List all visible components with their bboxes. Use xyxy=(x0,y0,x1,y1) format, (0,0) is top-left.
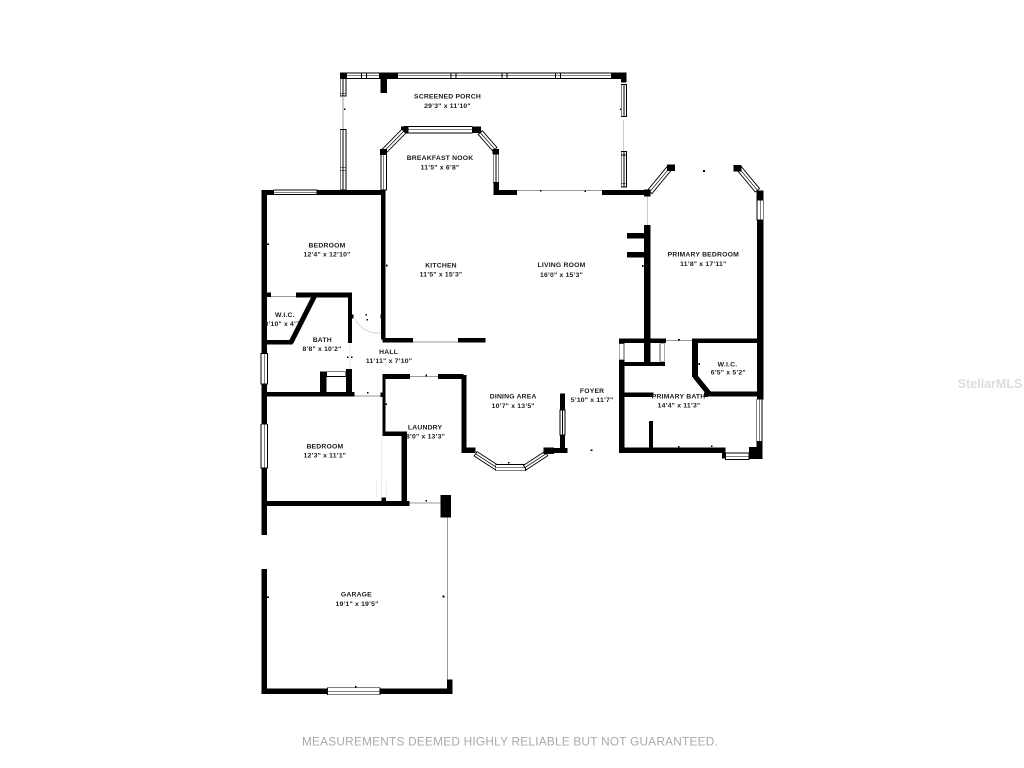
svg-text:12’4" x 12’10": 12’4" x 12’10" xyxy=(303,252,350,259)
svg-text:11’5" x 6’8": 11’5" x 6’8" xyxy=(421,165,460,172)
svg-text:BREAKFAST NOOK: BREAKFAST NOOK xyxy=(407,155,474,162)
svg-text:3’10" x 4’7": 3’10" x 4’7" xyxy=(264,321,303,328)
svg-text:11’8" x 17’11": 11’8" x 17’11" xyxy=(680,261,726,268)
svg-text:W.I.C.: W.I.C. xyxy=(275,312,295,319)
svg-text:LIVING ROOM: LIVING ROOM xyxy=(538,262,586,269)
svg-text:16’0" x 15’3": 16’0" x 15’3" xyxy=(540,272,583,279)
svg-text:W.I.C.: W.I.C. xyxy=(718,362,738,369)
svg-text:KITCHEN: KITCHEN xyxy=(425,262,457,269)
svg-text:11’5" x 15’3": 11’5" x 15’3" xyxy=(420,272,463,279)
svg-text:10’7" x 13’5": 10’7" x 13’5" xyxy=(492,403,535,410)
svg-text:8’0" x 13’3": 8’0" x 13’3" xyxy=(406,434,445,441)
svg-text:LAUNDRY: LAUNDRY xyxy=(408,425,443,432)
svg-text:GARAGE: GARAGE xyxy=(341,592,372,599)
svg-text:6’5" x 5’2": 6’5" x 5’2" xyxy=(711,369,746,376)
svg-text:BATH: BATH xyxy=(313,337,332,344)
svg-text:StellarMLS: StellarMLS xyxy=(958,377,1023,391)
svg-text:PRIMARY BEDROOM: PRIMARY BEDROOM xyxy=(668,252,739,259)
svg-text:8’8" x 10’2": 8’8" x 10’2" xyxy=(302,346,341,353)
svg-text:FOYER: FOYER xyxy=(580,388,604,395)
svg-text:11’11" x 7’10": 11’11" x 7’10" xyxy=(366,358,412,365)
svg-text:MEASUREMENTS DEEMED HIGHLY REL: MEASUREMENTS DEEMED HIGHLY RELIABLE BUT … xyxy=(302,735,718,749)
svg-text:12’3" x 11’1": 12’3" x 11’1" xyxy=(304,453,347,460)
svg-text:BEDROOM: BEDROOM xyxy=(309,242,346,249)
svg-text:DINING AREA: DINING AREA xyxy=(490,393,537,400)
svg-text:14’4" x 11’3": 14’4" x 11’3" xyxy=(658,403,701,410)
svg-text:SCREENED PORCH: SCREENED PORCH xyxy=(414,94,481,101)
svg-text:19’1" x 19’5": 19’1" x 19’5" xyxy=(335,601,378,608)
svg-text:HALL: HALL xyxy=(379,349,398,356)
svg-text:5’10" x 11’7": 5’10" x 11’7" xyxy=(571,397,614,404)
svg-text:PRIMARY BATH: PRIMARY BATH xyxy=(652,394,706,401)
svg-text:29’3" x 11’10": 29’3" x 11’10" xyxy=(424,103,471,110)
svg-text:BEDROOM: BEDROOM xyxy=(306,444,343,451)
